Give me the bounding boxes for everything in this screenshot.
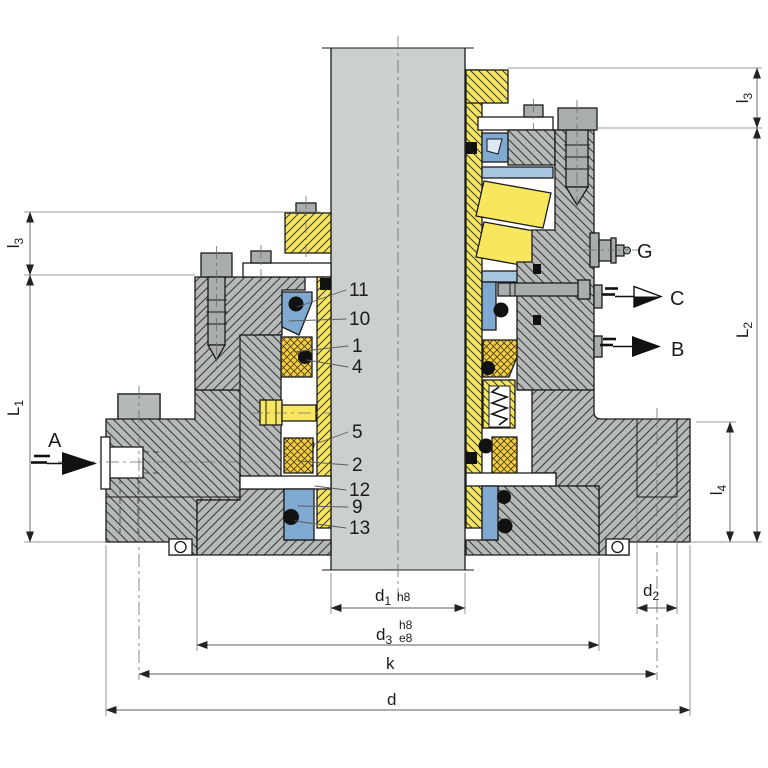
oring-part11-right [494,303,509,318]
bearing-inner-race [482,282,496,330]
callout-1: 1 [352,336,363,357]
arrow-b [632,336,661,357]
grease-fitting-g [584,233,640,267]
label-port-g: G [637,241,653,263]
port-b-stub [594,336,602,357]
label-d1-tol: h8 [397,590,411,604]
label-d1: d1 [375,586,391,608]
oring-part11 [289,297,304,312]
label-d3: d3 [376,625,392,647]
seal-face-part2 [284,438,313,473]
drive-bolt-head [260,400,282,425]
bottom-oring-left [175,542,186,553]
drive-pin-right-lower [466,452,477,464]
bearing-roller-upper [476,181,551,228]
label-port-a: A [48,430,62,452]
oring-bottom-right-2 [498,519,513,534]
callout-13: 13 [349,518,370,539]
shaft-sleeve-left [317,277,331,528]
oring-bottom-right-1 [497,490,511,504]
drive-pin-left [320,278,331,290]
port-c-stub [594,285,602,308]
callout-11: 11 [349,280,369,301]
label-l4: l4 [707,484,729,495]
gasket-right [466,473,556,486]
label-l3-left: l3 [4,237,26,248]
drive-collar-left [285,213,331,253]
drive-pin-right [466,142,477,154]
circulation-stud [498,283,590,296]
spacer-plate-right [478,117,553,130]
drive-collar-right [466,70,508,103]
housing-bolt-head [558,108,597,130]
label-d3-tol-lower: e8 [399,631,413,645]
label-port-b: B [671,339,684,361]
port-a-bore [106,447,143,478]
label-port-c: C [670,288,684,310]
oring-right-lower [479,439,494,454]
callout-9: 9 [352,497,363,518]
port-a-face [101,437,110,489]
technical-drawing-mechanical-seal-section: l3 L1 l3 L2 l4 d1 h8 d3 h8 e8 d2 k d 11 … [0,0,768,768]
label-L2: L2 [733,322,755,338]
oring-part4 [298,350,312,364]
label-d: d [387,690,396,709]
arrow-a [62,452,97,475]
label-L1: L1 [4,400,26,416]
label-d3-tol-upper: h8 [399,618,413,632]
label-k: k [386,654,395,673]
oring-part13 [283,509,299,525]
callout-5: 5 [352,422,363,443]
gasket-part12 [240,476,331,489]
shaft [322,36,474,600]
bearing-cap [508,130,555,165]
elastomer-right [482,486,498,540]
bottom-oring-right [612,542,623,553]
drawing-canvas: l3 L1 l3 L2 l4 d1 h8 d3 h8 e8 d2 k d 11 … [0,0,768,768]
spacer-plate-left [243,263,331,277]
bearing-race-upper [482,167,553,178]
label-l3-right: l3 [733,92,755,103]
oring-right-upper [481,361,495,375]
seal-face-right-lower [492,437,517,474]
callout-10: 10 [349,309,370,330]
callout-4: 4 [352,357,363,378]
callout-2: 2 [352,455,363,476]
